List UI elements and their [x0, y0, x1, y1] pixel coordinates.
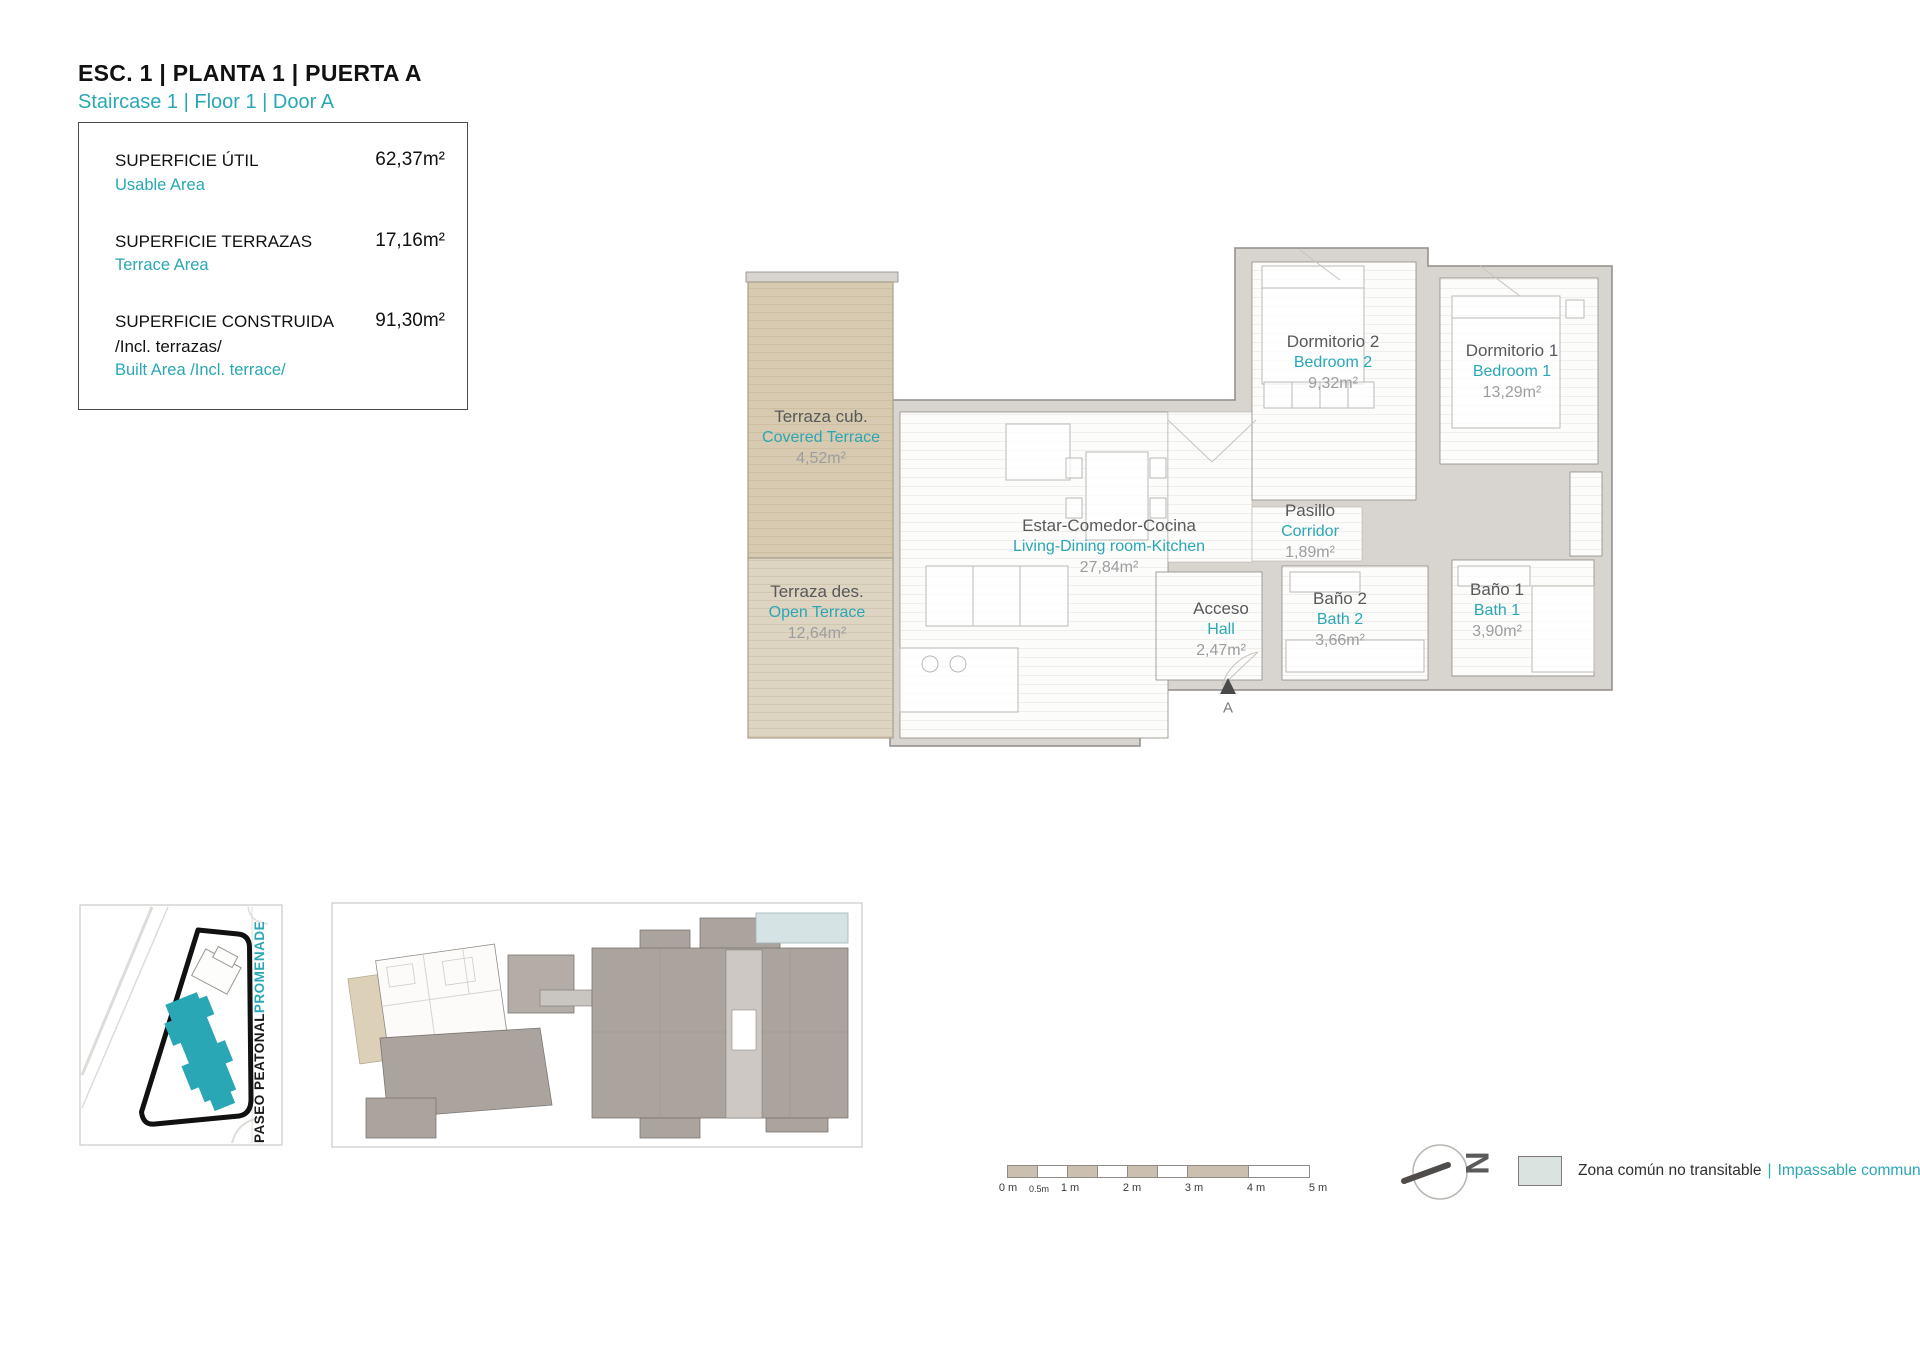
scale-bar: 0 m 0.5m 1 m 2 m 3 m 4 m 5 m: [1008, 1165, 1318, 1199]
summary-label-es: SUPERFICIE ÚTIL: [115, 149, 259, 174]
communal-area-highlight: [756, 913, 848, 943]
legend: Zona común no transitable|Impassable com…: [1518, 1156, 1920, 1186]
north-letter: N: [1459, 1151, 1495, 1174]
page-title: ESC. 1 | PLANTA 1 | PUERTA A: [78, 60, 422, 87]
legend-text-es: Zona común no transitable: [1578, 1162, 1762, 1179]
page: { "colors": { "accent": "#2AA7B5", "terr…: [0, 0, 1920, 1357]
summary-label-es: SUPERFICIE CONSTRUIDA: [115, 310, 334, 335]
header: ESC. 1 | PLANTA 1 | PUERTA A Staircase 1…: [78, 60, 422, 114]
corridor-floor: [1252, 507, 1362, 561]
scale-tick: 2 m: [1123, 1182, 1141, 1194]
summary-value: 17,16m²: [375, 230, 451, 252]
key-plan: [332, 903, 862, 1147]
summary-label-es2: /Incl. terrazas/: [115, 335, 334, 360]
scale-tick: 0 m: [999, 1182, 1017, 1194]
scale-tick: 0.5m: [1029, 1184, 1049, 1194]
summary-label-en: Terrace Area: [115, 254, 312, 278]
terrace-top-wall: [746, 272, 898, 282]
summary-value: 91,30m²: [375, 310, 451, 332]
summary-row-terrace: SUPERFICIE TERRAZAS Terrace Area 17,16m²: [115, 230, 451, 279]
street-label-es: PASEO PEATONAL: [252, 1013, 267, 1143]
entry-connector-floor: [1168, 412, 1252, 562]
summary-label-en: Built Area /Incl. terrace/: [115, 359, 334, 383]
north-arrow-icon: N: [1404, 1145, 1495, 1199]
covered-terrace-floor: [748, 282, 893, 558]
open-terrace-floor: [748, 558, 893, 738]
floor-plan: [746, 248, 1612, 746]
summary-value: 62,37m²: [375, 149, 451, 171]
page-subtitle: Staircase 1 | Floor 1 | Door A: [78, 91, 422, 114]
site-plan: PASEO PEATONAL PROMENADE: [80, 905, 282, 1145]
summary-label-en: Usable Area: [115, 174, 259, 198]
entrance-door-label: A: [1223, 700, 1233, 717]
scale-tick: 1 m: [1061, 1182, 1079, 1194]
scale-tick: 3 m: [1185, 1182, 1203, 1194]
communal-area-swatch: [1518, 1156, 1562, 1186]
street-label-en: PROMENADE: [252, 921, 267, 1013]
wardrobe-nook-floor: [1570, 472, 1602, 556]
summary-label-es: SUPERFICIE TERRAZAS: [115, 230, 312, 255]
scale-tick: 4 m: [1247, 1182, 1265, 1194]
summary-row-usable: SUPERFICIE ÚTIL Usable Area 62,37m²: [115, 149, 451, 198]
surface-summary-box: SUPERFICIE ÚTIL Usable Area 62,37m² SUPE…: [78, 122, 468, 410]
scale-tick: 5 m: [1309, 1182, 1327, 1194]
legend-separator: |: [1762, 1162, 1778, 1179]
summary-row-built: SUPERFICIE CONSTRUIDA /Incl. terrazas/ B…: [115, 310, 451, 383]
legend-text-en: Impassable communal area: [1778, 1162, 1920, 1179]
